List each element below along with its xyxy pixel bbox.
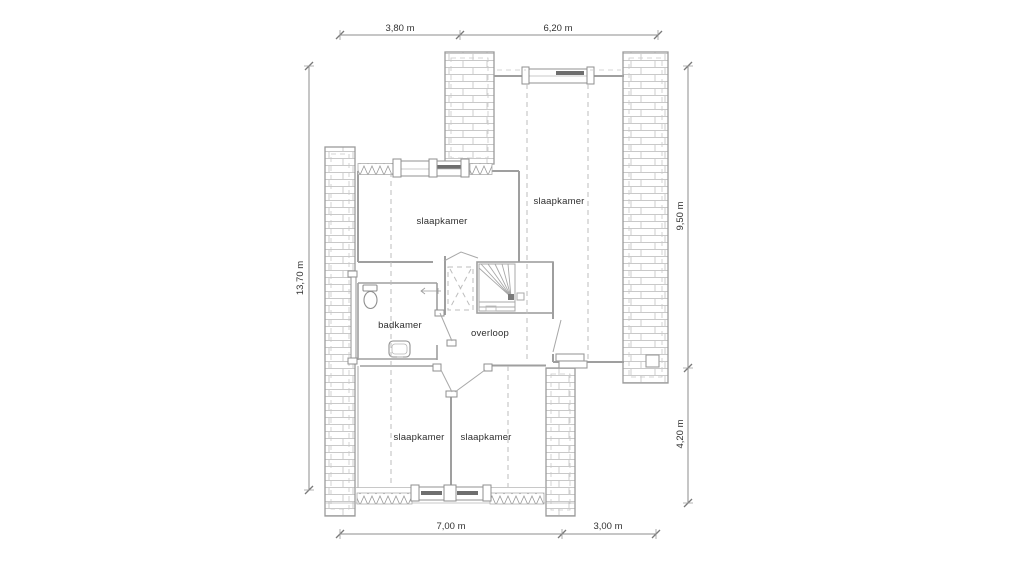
insulation-bottom-2-zz — [490, 493, 544, 504]
dim-label-3-00: 3,00 m — [593, 521, 622, 532]
dim-label-7-00: 7,00 m — [436, 521, 465, 532]
floor-plan-page: 3,80 m 6,20 m 7,00 m 3,00 m 13,70 m 9,50… — [0, 0, 1024, 580]
skylight-void — [448, 267, 473, 310]
label-bedroom-bottom-left: slaapkamer — [393, 432, 444, 443]
door-bedroom-bottom-left-leaf — [441, 370, 452, 392]
window-bl-post-1 — [393, 159, 401, 177]
window-bottom-post-3 — [483, 485, 491, 501]
window-bathroom — [351, 276, 356, 359]
toilet-tank — [363, 285, 377, 291]
door-bathroom-jamb-top — [435, 310, 444, 316]
label-landing: overloop — [471, 328, 509, 339]
window-bottom-sash-right — [457, 491, 478, 495]
window-bedroom-left-sash — [437, 165, 463, 169]
label-bedroom-bottom-middle: slaapkamer — [460, 432, 511, 443]
stair-flight — [479, 264, 515, 311]
insulation-bottom-1-zz — [357, 493, 412, 504]
insulation-top-1-zz — [358, 164, 395, 175]
hatched-wall-bottom-right — [546, 368, 575, 516]
door-frame-bedroom-right-b — [559, 361, 587, 368]
stair-treads — [479, 264, 515, 307]
dim-label-3-80: 3,80 m — [385, 23, 414, 34]
door-frame-bedroom-right-a — [556, 354, 584, 361]
flue-notch — [646, 355, 659, 367]
dim-label-13-70: 13,70 m — [295, 261, 306, 295]
doors — [421, 288, 561, 397]
window-top-post-left — [522, 67, 529, 84]
door-bathroom-leaf — [440, 313, 452, 341]
hatched-wall-right — [623, 52, 668, 383]
toilet-bowl — [364, 292, 377, 309]
door-bedroom-bottom-middle-leaf — [455, 370, 485, 392]
window-bathroom-cap-top — [348, 271, 357, 277]
stair-newel — [508, 294, 514, 300]
door-bottom-left-jamb — [433, 364, 441, 371]
label-bedroom-top-right: slaapkamer — [533, 196, 584, 207]
wall-bathroom-bottom — [358, 359, 437, 366]
door-bottom-right-jamb — [484, 364, 492, 371]
window-bl-post-3 — [461, 159, 469, 177]
window-bottom-sash-left — [421, 491, 442, 495]
door-swing-arrow — [421, 288, 441, 294]
label-bedroom-top-left: slaapkamer — [416, 216, 467, 227]
window-bottom-post-1 — [411, 485, 419, 501]
stair-post — [517, 293, 524, 300]
window-bl-post-2 — [429, 159, 437, 177]
window-top-post-right — [587, 67, 594, 84]
window-bottom-post-2 — [444, 485, 456, 501]
label-bathroom: badkamer — [378, 320, 422, 331]
floor-plan-canvas: 3,80 m 6,20 m 7,00 m 3,00 m 13,70 m 9,50… — [0, 0, 1024, 580]
dim-label-4-20: 4,20 m — [675, 419, 686, 448]
dim-label-6-20: 6,20 m — [543, 23, 572, 34]
dim-label-9-50: 9,50 m — [675, 201, 686, 230]
window-bathroom-cap-bottom — [348, 358, 357, 364]
hatched-wall-top-left — [445, 52, 494, 164]
arrow-glyph — [421, 288, 441, 294]
dormer-slope-line — [444, 252, 478, 261]
door-bedroom-right-leaf — [553, 320, 561, 352]
insulation-top-2-zz — [470, 164, 492, 175]
window-top-sash — [556, 71, 584, 75]
stairwell — [448, 262, 553, 313]
skylight-cross — [450, 269, 471, 308]
